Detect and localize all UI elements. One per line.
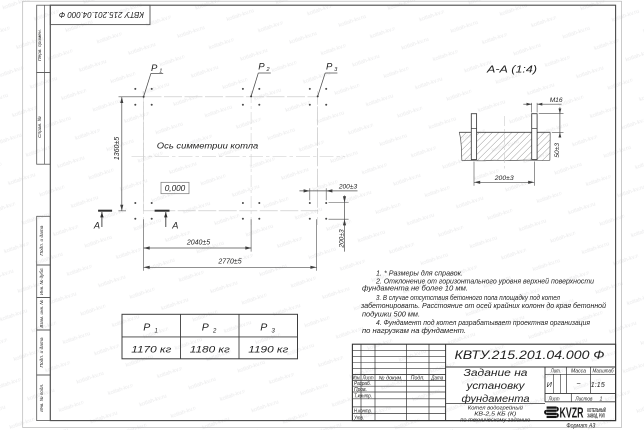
svg-text:Взам. инв. №: Взам. инв. № <box>39 300 44 328</box>
svg-text:Т.контр.: Т.контр. <box>354 394 372 400</box>
svg-text:1360±5: 1360±5 <box>114 137 121 160</box>
svg-text:КВТУ.215.201.04.000 Ф: КВТУ.215.201.04.000 Ф <box>455 348 605 362</box>
svg-text:200±3: 200±3 <box>494 175 514 182</box>
svg-text:Котел водогрейный: Котел водогрейный <box>468 404 524 411</box>
svg-text:Подп. и дата: Подп. и дата <box>39 337 45 367</box>
svg-text:М16: М16 <box>550 97 563 104</box>
svg-text:Ось симметрии котла: Ось симметрии котла <box>157 141 259 151</box>
svg-text:А-А (1:4): А-А (1:4) <box>486 64 537 75</box>
svg-text:Листов: Листов <box>575 396 593 402</box>
svg-text:2770±5: 2770±5 <box>217 259 241 266</box>
svg-text:Р: Р <box>202 321 209 333</box>
svg-text:установку: установку <box>465 381 525 392</box>
svg-text:−: − <box>576 379 581 388</box>
svg-text:1170 кг: 1170 кг <box>131 345 172 355</box>
svg-text:Лист: Лист <box>548 396 560 402</box>
svg-text:Лит.: Лит. <box>550 369 561 375</box>
svg-text:Подп. и дата: Подп. и дата <box>39 225 45 255</box>
svg-text:Инв. № подл.: Инв. № подл. <box>39 384 44 412</box>
svg-text:И: И <box>547 380 553 389</box>
svg-text:Пров.: Пров. <box>354 387 367 393</box>
svg-text:Формат А3: Формат А3 <box>566 423 596 429</box>
svg-text:Р: Р <box>151 63 158 74</box>
svg-text:Масштаб: Масштаб <box>593 369 615 375</box>
svg-text:Инв. № дубл.: Инв. № дубл. <box>39 267 44 295</box>
svg-text:Задание на: Задание на <box>464 368 528 379</box>
svg-text:2: 2 <box>212 328 217 334</box>
svg-text:Утв.: Утв. <box>354 415 364 421</box>
svg-text:1: 1 <box>155 328 158 334</box>
svg-text:по техническому заданию: по техническому заданию <box>460 417 531 423</box>
svg-text:Р: Р <box>143 321 150 333</box>
svg-text:по нагрузкам на фундамент.: по нагрузкам на фундамент. <box>362 326 466 335</box>
svg-text:Справ. №: Справ. № <box>37 116 43 138</box>
svg-text:Н.контр.: Н.контр. <box>354 408 372 414</box>
svg-text:Дата: Дата <box>430 375 443 381</box>
svg-text:2040±5: 2040±5 <box>186 239 210 246</box>
svg-text:0,000: 0,000 <box>165 184 186 193</box>
svg-text:50±3: 50±3 <box>554 143 561 158</box>
svg-text:1180 кг: 1180 кг <box>190 345 231 355</box>
svg-text:2: 2 <box>266 67 270 73</box>
svg-text:А: А <box>171 220 178 230</box>
svg-text:1: 1 <box>600 396 603 402</box>
svg-text:Масса: Масса <box>571 369 586 375</box>
svg-text:Р: Р <box>258 61 265 72</box>
svg-text:ЗАВОД, РЭП: ЗАВОД, РЭП <box>587 413 605 419</box>
svg-text:забетонировать. Расстояние от: забетонировать. Расстояние от осей крайн… <box>360 301 606 310</box>
svg-text:200±3: 200±3 <box>338 229 345 249</box>
svg-text:фундамента не более 10 мм.: фундамента не более 10 мм. <box>362 284 468 293</box>
svg-text:200±3: 200±3 <box>338 184 358 191</box>
svg-text:KVZR: KVZR <box>560 405 584 421</box>
svg-text:КВТУ 215.201.04.000 Ф: КВТУ 215.201.04.000 Ф <box>59 10 144 20</box>
svg-text:Р: Р <box>260 321 267 333</box>
svg-text:№ докум.: № докум. <box>379 375 403 381</box>
svg-text:Р: Р <box>326 61 333 72</box>
svg-text:Перв. примен.: Перв. примен. <box>37 29 43 61</box>
svg-text:Подп.: Подп. <box>411 375 425 381</box>
svg-text:А: А <box>93 220 100 230</box>
svg-text:1:15: 1:15 <box>591 380 606 389</box>
svg-text:1190 кг: 1190 кг <box>248 345 289 355</box>
